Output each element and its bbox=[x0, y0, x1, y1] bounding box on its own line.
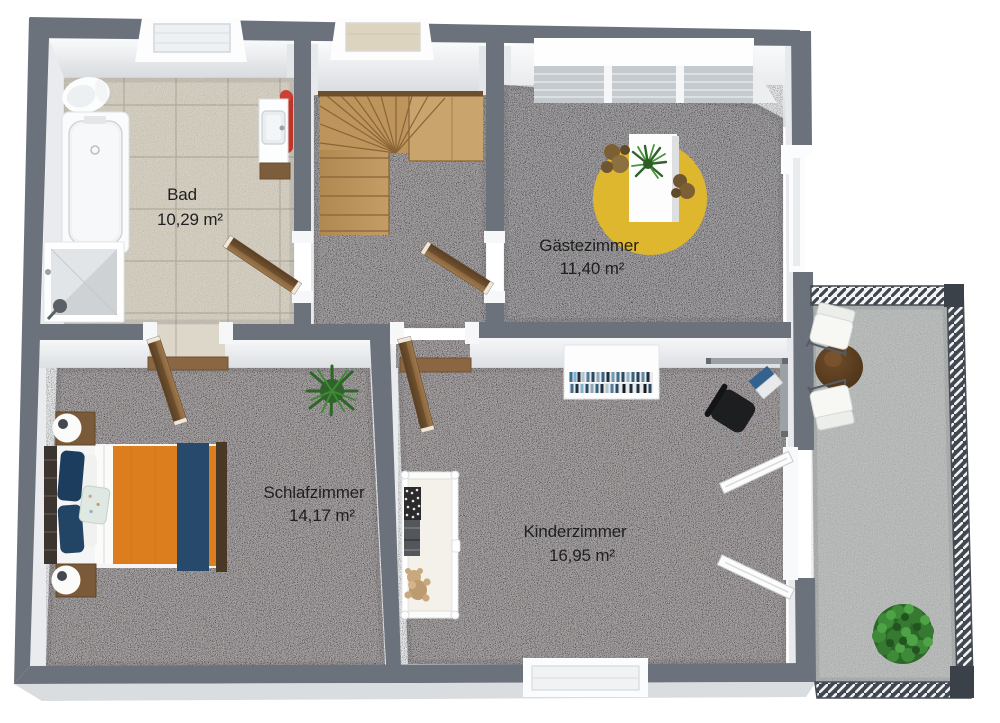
svg-text:Gästezimmer: Gästezimmer bbox=[539, 236, 639, 255]
svg-text:Bad: Bad bbox=[167, 185, 197, 204]
svg-text:16,95 m²: 16,95 m² bbox=[549, 546, 615, 565]
svg-text:Schlafzimmer: Schlafzimmer bbox=[263, 483, 365, 502]
svg-text:11,40 m²: 11,40 m² bbox=[560, 259, 625, 278]
svg-text:Kinderzimmer: Kinderzimmer bbox=[523, 522, 627, 541]
svg-text:14,17 m²: 14,17 m² bbox=[289, 506, 355, 525]
svg-text:10,29 m²: 10,29 m² bbox=[157, 210, 223, 229]
